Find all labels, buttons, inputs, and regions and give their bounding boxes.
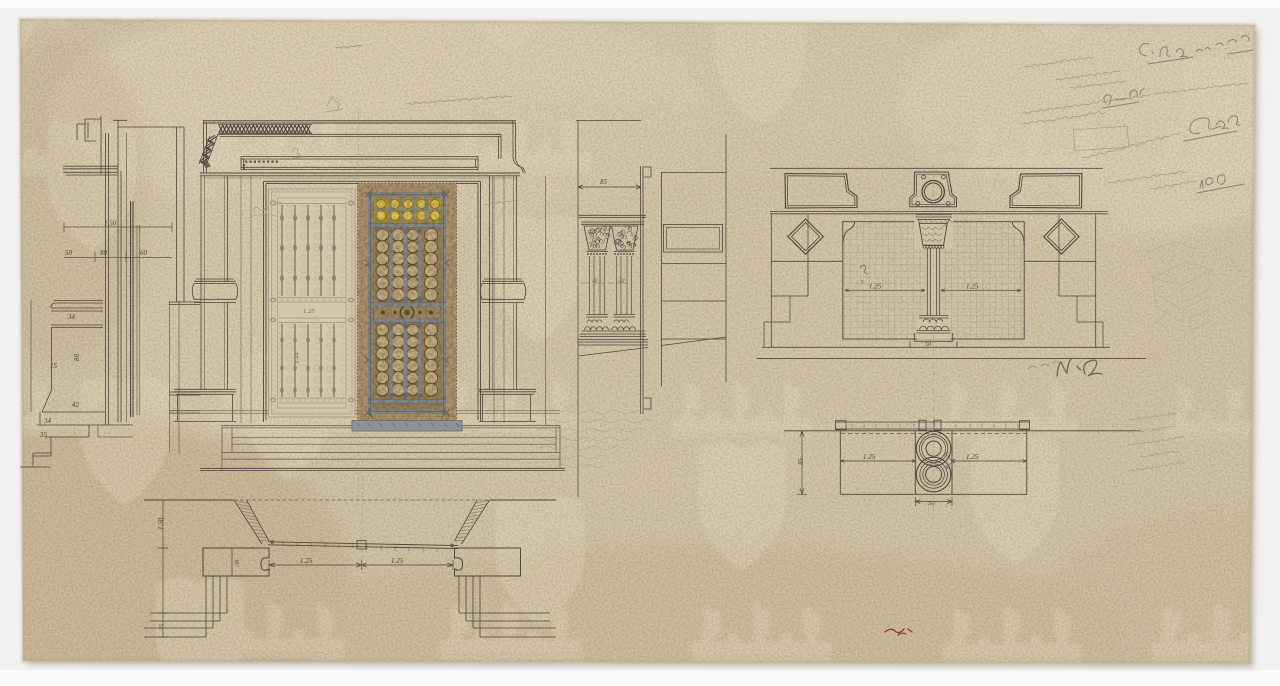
svg-text:20: 20 (592, 278, 598, 284)
svg-text:50: 50 (928, 500, 935, 507)
svg-text:1.25: 1.25 (863, 453, 876, 461)
svg-text:60: 60 (140, 249, 148, 257)
svg-text:38: 38 (235, 560, 241, 567)
svg-text:88: 88 (73, 354, 81, 362)
svg-text:3.44: 3.44 (294, 352, 301, 365)
svg-text:1.25: 1.25 (391, 557, 404, 565)
svg-text:42: 42 (72, 401, 80, 409)
svg-text:1.50: 1.50 (104, 220, 117, 228)
svg-text:34: 34 (43, 417, 52, 425)
svg-text:20: 20 (619, 278, 625, 284)
svg-text:1.25: 1.25 (966, 453, 979, 461)
svg-text:1.25: 1.25 (966, 283, 979, 291)
svg-text:15: 15 (50, 362, 58, 370)
svg-text:1.50: 1.50 (157, 517, 165, 530)
svg-text:88: 88 (100, 249, 108, 257)
svg-text:34: 34 (67, 313, 76, 321)
svg-text:85: 85 (600, 178, 608, 186)
svg-text:50: 50 (65, 249, 73, 257)
svg-text:1.25: 1.25 (300, 557, 313, 565)
svg-text:35: 35 (159, 624, 165, 631)
svg-text:85: 85 (797, 458, 805, 466)
svg-text:35: 35 (39, 431, 48, 439)
svg-text:1.25: 1.25 (869, 283, 882, 291)
svg-text:1.25: 1.25 (303, 308, 315, 315)
